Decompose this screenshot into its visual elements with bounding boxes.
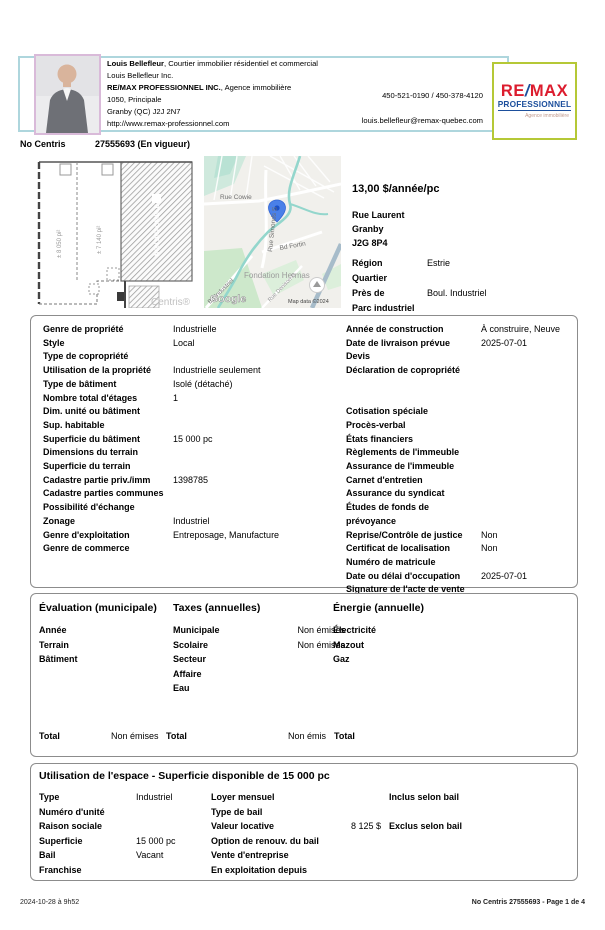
detail-row: Carnet d'entretien bbox=[346, 474, 574, 488]
agency-website-link[interactable]: http://www.remax-professionnel.com bbox=[107, 119, 229, 128]
usage-row: Numéro d'unité Type de bail bbox=[39, 805, 571, 820]
agency-type: , Agence immobilière bbox=[221, 83, 292, 92]
detail-row: Utilisation de la propriété Industrielle… bbox=[43, 364, 323, 378]
tax-row: Municipale Non émises bbox=[173, 623, 345, 638]
detail-row: Date ou délai d'occupation 2025-07-01 bbox=[346, 570, 574, 584]
detail-row: Année de construction À construire, Neuv… bbox=[346, 323, 574, 337]
asking-price: 13,00 $/année/pc bbox=[352, 183, 584, 195]
detail-row: Superficie du bâtiment 15 000 pc bbox=[43, 433, 323, 447]
detail-label: Dim. unité ou bâtiment bbox=[43, 405, 173, 419]
remax-logo: RE/MAX PROFESSIONNEL Agence immobilière bbox=[492, 62, 577, 140]
usage-label-1: Franchise bbox=[39, 863, 136, 878]
agent-title: , Courtier immobilier résidentiel et com… bbox=[164, 59, 318, 68]
energy-label: Gaz bbox=[333, 652, 350, 667]
agent-photo bbox=[34, 54, 101, 135]
evaluation-label: Année bbox=[39, 623, 67, 638]
usage-note: Inclus selon bail bbox=[389, 790, 459, 805]
detail-label: Études de fonds de prévoyance bbox=[346, 501, 481, 528]
detail-label: Cotisation spéciale bbox=[346, 405, 481, 419]
detail-row: Procès-verbal bbox=[346, 419, 574, 433]
detail-row bbox=[346, 378, 574, 392]
plan-entry-marker bbox=[117, 292, 125, 301]
agent-company: Louis Bellefleur Inc. bbox=[107, 71, 173, 80]
space-usage-title: Utilisation de l'espace - Superficie dis… bbox=[39, 770, 330, 782]
energy-heading: Énergie (annuelle) bbox=[333, 602, 493, 614]
remax-re: RE bbox=[501, 82, 525, 100]
location-fields: Région Estrie Quartier Près de Boul. Ind… bbox=[352, 256, 584, 315]
agent-photo-illustration bbox=[36, 56, 99, 133]
tax-row: Secteur bbox=[173, 652, 345, 667]
detail-row: Date de livraison prévue 2025-07-01 bbox=[346, 337, 574, 351]
detail-label: Date de livraison prévue bbox=[346, 337, 481, 351]
field-label: Région bbox=[352, 256, 427, 271]
detail-value: Non bbox=[481, 529, 498, 543]
detail-row: Numéro de matricule bbox=[346, 556, 574, 570]
detail-row: Certificat de localisation Non bbox=[346, 542, 574, 556]
taxes-heading: Taxes (annuelles) bbox=[173, 602, 345, 614]
detail-value: Industrielle bbox=[173, 323, 217, 337]
listing-number-label: No Centris bbox=[20, 139, 66, 149]
detail-row: Reprise/Contrôle de justice Non bbox=[346, 529, 574, 543]
usage-value-1: 15 000 pc bbox=[136, 834, 211, 849]
detail-label: Certificat de localisation bbox=[346, 542, 481, 556]
streetview-icon[interactable] bbox=[310, 278, 325, 293]
space-usage-section: Utilisation de l'espace - Superficie dis… bbox=[30, 763, 578, 881]
detail-label: Devis bbox=[346, 350, 481, 364]
detail-row: Zonage Industriel bbox=[43, 515, 323, 529]
detail-value: Local bbox=[173, 337, 195, 351]
energy-label: Mazout bbox=[333, 638, 364, 653]
detail-label: Numéro de matricule bbox=[346, 556, 481, 570]
usage-label-1: Superficie bbox=[39, 834, 136, 849]
page-number: No Centris 27555693 - Page 1 de 4 bbox=[472, 899, 585, 906]
location-field-row: Parc industriel bbox=[352, 301, 584, 316]
detail-label: Superficie du bâtiment bbox=[43, 433, 173, 447]
usage-row: Franchise En exploitation depuis bbox=[39, 863, 571, 878]
detail-label: Date ou délai d'occupation bbox=[346, 570, 481, 584]
remax-professionnel-label: PROFESSIONNEL bbox=[498, 99, 572, 111]
evaluation-row: Bâtiment bbox=[39, 652, 164, 667]
detail-value: 15 000 pc bbox=[173, 433, 213, 447]
usage-value-2: 8 125 $ bbox=[334, 819, 389, 834]
detail-row: Cotisation spéciale bbox=[346, 405, 574, 419]
usage-label-2: Type de bail bbox=[211, 805, 334, 820]
agency-street: 1050, Principale bbox=[107, 95, 161, 104]
usage-label-2: Valeur locative bbox=[211, 819, 334, 834]
print-timestamp: 2024-10-28 à 9h52 bbox=[20, 899, 79, 906]
detail-label: Type de bâtiment bbox=[43, 378, 173, 392]
tax-label: Scolaire bbox=[173, 638, 208, 653]
detail-value: Entreposage, Manufacture bbox=[173, 529, 279, 543]
detail-value: 1398785 bbox=[173, 474, 208, 488]
google-logo: Google bbox=[210, 293, 246, 305]
city: Granby bbox=[352, 223, 584, 237]
detail-label: Cadastre partie priv./imm bbox=[43, 474, 173, 488]
detail-row: Style Local bbox=[43, 337, 323, 351]
field-value: Boul. Industriel bbox=[427, 286, 487, 301]
agent-line: 1050, Principale bbox=[107, 94, 318, 106]
detail-value: À construire, Neuve bbox=[481, 323, 560, 337]
detail-row: Dimensions du terrain bbox=[43, 446, 323, 460]
field-label: Parc industriel bbox=[352, 301, 427, 316]
detail-row: Sup. habitable bbox=[43, 419, 323, 433]
detail-label: Année de construction bbox=[346, 323, 481, 337]
detail-row: Assurance du syndicat bbox=[346, 487, 574, 501]
energy-total-label: Total bbox=[334, 731, 355, 741]
evaluation-taxes-energy-section: Évaluation (municipale) Année Terrain Bâ… bbox=[30, 593, 578, 757]
usage-label-2: Vente d'entreprise bbox=[211, 848, 334, 863]
field-label: Quartier bbox=[352, 271, 427, 286]
detail-row: États financiers bbox=[346, 433, 574, 447]
detail-row: Devis bbox=[346, 350, 574, 364]
agent-phones: 450-521-0190 / 450-378-4120 bbox=[362, 90, 483, 102]
detail-label: Superficie du terrain bbox=[43, 460, 173, 474]
contact-block: 450-521-0190 / 450-378-4120 louis.bellef… bbox=[362, 90, 483, 127]
energy-row: Électricité bbox=[333, 623, 493, 638]
evaluation-label: Bâtiment bbox=[39, 652, 78, 667]
usage-label-2: Option de renouv. du bail bbox=[211, 834, 334, 849]
tax-row: Eau bbox=[173, 681, 345, 696]
detail-label: Dimensions du terrain bbox=[43, 446, 173, 460]
agent-email-link[interactable]: louis.bellefleur@remax-quebec.com bbox=[362, 115, 483, 127]
listing-sheet-page: { "colors": { "remax_red": "#DC1C2E", "r… bbox=[0, 0, 605, 930]
usage-note: Exclus selon bail bbox=[389, 819, 462, 834]
space-usage-rows: Type Industriel Loyer mensuel Inclus sel… bbox=[39, 790, 571, 877]
detail-label: Genre de commerce bbox=[43, 542, 173, 556]
detail-row bbox=[346, 392, 574, 406]
detail-row: Genre d'exploitation Entreposage, Manufa… bbox=[43, 529, 323, 543]
detail-label bbox=[346, 392, 481, 406]
detail-label: Style bbox=[43, 337, 173, 351]
centris-watermark: Centris® bbox=[151, 297, 191, 308]
detail-label: Sup. habitable bbox=[43, 419, 173, 433]
detail-row: Études de fonds de prévoyance bbox=[346, 501, 574, 528]
usage-row: Type Industriel Loyer mensuel Inclus sel… bbox=[39, 790, 571, 805]
detail-label: Genre d'exploitation bbox=[43, 529, 173, 543]
agent-line: Louis Bellefleur, Courtier immobilier ré… bbox=[107, 58, 318, 70]
detail-value: Industrielle seulement bbox=[173, 364, 261, 378]
location-field-row: Près de Boul. Industriel bbox=[352, 286, 584, 301]
evaluation-label: Terrain bbox=[39, 638, 69, 653]
detail-label: Procès-verbal bbox=[346, 419, 481, 433]
energy-label: Électricité bbox=[333, 623, 376, 638]
detail-row: Genre de commerce bbox=[43, 542, 323, 556]
plan-left-area-label: ± 8 050 pi² bbox=[57, 230, 63, 258]
tax-row: Scolaire Non émises bbox=[173, 638, 345, 653]
detail-value: 1 bbox=[173, 392, 178, 406]
tax-label: Affaire bbox=[173, 667, 202, 682]
energy-row: Gaz bbox=[333, 652, 493, 667]
details-left-column: Genre de propriété Industrielle Style Lo… bbox=[43, 323, 323, 556]
detail-label: Assurance de l'immeuble bbox=[346, 460, 481, 474]
agent-name: Louis Bellefleur bbox=[107, 59, 164, 68]
usage-value-1: Vacant bbox=[136, 848, 211, 863]
detail-label: Nombre total d'étages bbox=[43, 392, 173, 406]
usage-label-1: Raison sociale bbox=[39, 819, 136, 834]
detail-row: Type de bâtiment Isolé (détaché) bbox=[43, 378, 323, 392]
field-value: Estrie bbox=[427, 256, 450, 271]
field-label: Près de bbox=[352, 286, 427, 301]
detail-label: Assurance du syndicat bbox=[346, 487, 481, 501]
plan-mid-area-label: ± 7 140 pi² bbox=[97, 226, 103, 254]
location-field-row: Quartier bbox=[352, 271, 584, 286]
detail-label: Type de copropriété bbox=[43, 350, 173, 364]
agency-city: Granby (QC) J2J 2N7 bbox=[107, 107, 180, 116]
detail-value: Industriel bbox=[173, 515, 210, 529]
plan-unavailable-label: NON DISPONIBLE bbox=[155, 204, 161, 256]
detail-row: Assurance de l'immeuble bbox=[346, 460, 574, 474]
detail-row: Règlements de l'immeuble bbox=[346, 446, 574, 460]
agency-name: RE/MAX PROFESSIONNEL INC. bbox=[107, 83, 221, 92]
tax-label: Municipale bbox=[173, 623, 220, 638]
usage-value-1: Industriel bbox=[136, 790, 211, 805]
taxes-total-label: Total bbox=[166, 731, 187, 741]
detail-label: Reprise/Contrôle de justice bbox=[346, 529, 481, 543]
postal-code: J2G 8P4 bbox=[352, 237, 584, 251]
street-address: Rue Laurent bbox=[352, 209, 584, 223]
evaluation-row: Terrain bbox=[39, 638, 164, 653]
usage-row: Raison sociale Valeur locative 8 125 $ E… bbox=[39, 819, 571, 834]
detail-label: Cadastre parties communes bbox=[43, 487, 173, 501]
tax-label: Secteur bbox=[173, 652, 206, 667]
remax-max: MAX bbox=[530, 82, 568, 100]
agent-line: RE/MAX PROFESSIONNEL INC., Agence immobi… bbox=[107, 82, 318, 94]
detail-row: Possibilité d'échange bbox=[43, 501, 323, 515]
detail-row: Genre de propriété Industrielle bbox=[43, 323, 323, 337]
remax-agency-tagline: Agence immobilière bbox=[525, 113, 569, 119]
detail-row: Cadastre parties communes bbox=[43, 487, 323, 501]
listing-number-value: 27555693 (En vigueur) bbox=[95, 139, 190, 149]
detail-row: Type de copropriété bbox=[43, 350, 323, 364]
map-copyright: Map data ©2024 bbox=[288, 298, 329, 305]
detail-label: États financiers bbox=[346, 433, 481, 447]
detail-value: Non bbox=[481, 542, 498, 556]
usage-label-1: Bail bbox=[39, 848, 136, 863]
detail-row: Dim. unité ou bâtiment bbox=[43, 405, 323, 419]
taxes-total-value: Non émis bbox=[288, 731, 326, 741]
map-label-rue-cowie: Rue Cowie bbox=[220, 194, 252, 201]
detail-label bbox=[346, 378, 481, 392]
detail-label: Déclaration de copropriété bbox=[346, 364, 481, 378]
price-address-block: 13,00 $/année/pc Rue Laurent Granby J2G … bbox=[352, 183, 584, 315]
detail-row: Déclaration de copropriété bbox=[346, 364, 574, 378]
evaluation-total-label: Total bbox=[39, 731, 60, 741]
detail-row: Cadastre partie priv./imm 1398785 bbox=[43, 474, 323, 488]
detail-label: Utilisation de la propriété bbox=[43, 364, 173, 378]
detail-row: Nombre total d'étages 1 bbox=[43, 392, 323, 406]
energy-column: Énergie (annuelle) Électricité Mazout Ga… bbox=[333, 602, 493, 667]
floor-plan-image[interactable]: ± 8 050 pi² ± 7 140 pi² NON DISPONIBLE C… bbox=[33, 156, 196, 308]
evaluation-column: Évaluation (municipale) Année Terrain Bâ… bbox=[39, 602, 164, 667]
agent-line: http://www.remax-professionnel.com bbox=[107, 118, 318, 130]
usage-label-2: En exploitation depuis bbox=[211, 863, 334, 878]
evaluation-heading: Évaluation (municipale) bbox=[39, 602, 164, 614]
energy-row: Mazout bbox=[333, 638, 493, 653]
agent-line: Louis Bellefleur Inc. bbox=[107, 70, 318, 82]
evaluation-row: Année bbox=[39, 623, 164, 638]
usage-row: Bail Vacant Vente d'entreprise bbox=[39, 848, 571, 863]
evaluation-total-value: Non émises bbox=[111, 731, 159, 741]
detail-label: Zonage bbox=[43, 515, 173, 529]
location-field-row: Région Estrie bbox=[352, 256, 584, 271]
detail-row: Superficie du terrain bbox=[43, 460, 323, 474]
usage-label-1: Type bbox=[39, 790, 136, 805]
property-details-section: Genre de propriété Industrielle Style Lo… bbox=[30, 315, 578, 588]
detail-label: Possibilité d'échange bbox=[43, 501, 173, 515]
detail-label: Carnet d'entretien bbox=[346, 474, 481, 488]
detail-label: Genre de propriété bbox=[43, 323, 173, 337]
detail-label: Règlements de l'immeuble bbox=[346, 446, 481, 460]
map-label-fondation-hermas: Fondation Hermas bbox=[244, 271, 310, 280]
listing-number-line: No Centris 27555693 (En vigueur) bbox=[20, 139, 66, 149]
usage-label-2: Loyer mensuel bbox=[211, 790, 334, 805]
detail-value: 2025-07-01 bbox=[481, 337, 527, 351]
agent-info-block: Louis Bellefleur, Courtier immobilier ré… bbox=[107, 58, 318, 130]
usage-row: Superficie 15 000 pc Option de renouv. d… bbox=[39, 834, 571, 849]
usage-label-1: Numéro d'unité bbox=[39, 805, 136, 820]
details-right-column: Année de construction À construire, Neuv… bbox=[346, 323, 574, 597]
remax-wordmark: RE/MAX bbox=[501, 83, 568, 99]
detail-value: Isolé (détaché) bbox=[173, 378, 233, 392]
detail-value: 2025-07-01 bbox=[481, 570, 527, 584]
tax-row: Affaire bbox=[173, 667, 345, 682]
tax-label: Eau bbox=[173, 681, 190, 696]
agent-line: Granby (QC) J2J 2N7 bbox=[107, 106, 318, 118]
taxes-column: Taxes (annuelles) Municipale Non émises … bbox=[173, 602, 345, 696]
location-map[interactable]: Rue Cowie Rue Simonds S Bd Fortin Fondat… bbox=[204, 156, 341, 308]
